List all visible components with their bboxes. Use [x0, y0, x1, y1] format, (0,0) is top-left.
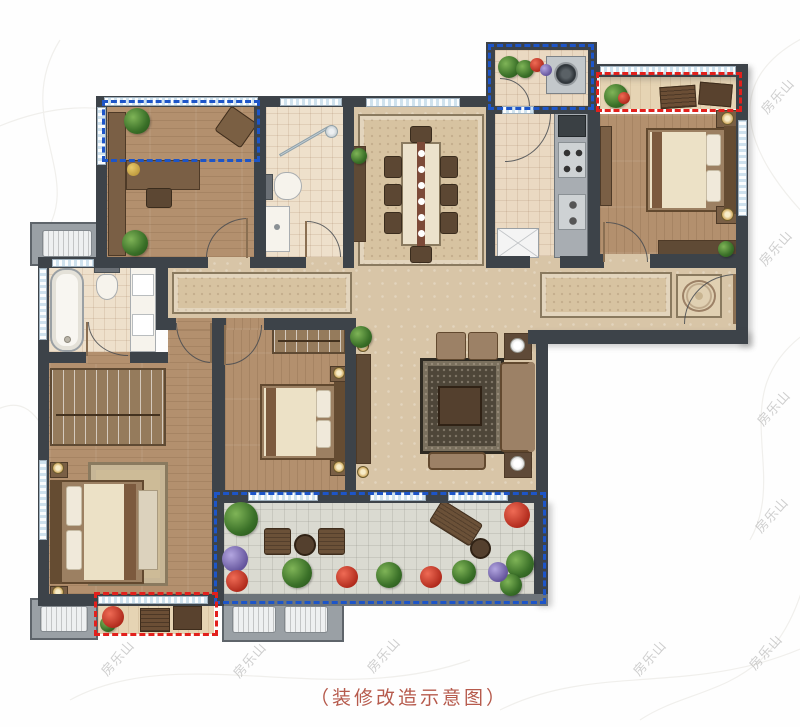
pillow: [316, 420, 331, 448]
dining-chair: [410, 246, 432, 263]
headboard: [50, 480, 62, 584]
table-lamp: [333, 461, 345, 473]
toilet: [96, 274, 118, 300]
window: [39, 460, 47, 540]
place-settings: [418, 150, 425, 157]
armchair: [436, 332, 466, 360]
wall: [588, 106, 600, 268]
renovation-zone-garden-balcony: [214, 492, 546, 604]
bed-runner: [652, 132, 662, 208]
ac-unit: [284, 606, 328, 633]
wall: [38, 352, 86, 363]
wall: [528, 330, 748, 344]
wall: [130, 352, 168, 363]
dining-chair: [384, 184, 402, 206]
dresser: [600, 126, 612, 206]
table-lamp: [721, 208, 734, 221]
dining-chair: [384, 156, 402, 178]
renovation-zone-terrace: [596, 72, 742, 112]
potted-plant: [718, 241, 734, 257]
wall: [486, 106, 495, 268]
bed-runner: [124, 484, 136, 580]
dining-chair: [440, 184, 458, 206]
door-leaf: [305, 221, 307, 257]
entry-runner-rug: [540, 272, 672, 318]
floor-lamp: [357, 466, 369, 478]
door-threshold: [306, 257, 343, 269]
window: [280, 98, 342, 106]
wall: [254, 257, 306, 268]
renovation-zone-utility-balcony: [488, 44, 594, 110]
wall: [560, 256, 600, 268]
window: [738, 120, 747, 216]
renovation-zone-bottom-balcony: [94, 592, 218, 636]
potted-plant: [351, 148, 367, 164]
ac-unit: [232, 606, 276, 633]
coffee-table: [438, 386, 482, 426]
dining-chair: [440, 212, 458, 234]
hallway-runner-rug: [172, 272, 352, 314]
caption: （装修改造示意图）: [310, 683, 508, 710]
refrigerator: [497, 228, 539, 258]
wall: [650, 254, 746, 268]
table-lamp: [510, 338, 525, 353]
bed-runner: [266, 388, 276, 456]
dining-chair: [440, 156, 458, 178]
kitchen-sink: [558, 115, 586, 137]
table-lamp: [510, 456, 525, 471]
wall: [343, 96, 354, 268]
renovation-zone-study: [102, 100, 260, 162]
wall: [536, 330, 548, 502]
wardrobe: [50, 368, 166, 446]
ac-unit: [40, 606, 88, 632]
sofa-back: [527, 362, 535, 452]
wardrobe-rod: [278, 340, 340, 342]
dining-chair: [384, 212, 402, 234]
vanity-sink: [132, 314, 154, 336]
tub-drain: [64, 336, 71, 343]
ac-unit: [42, 230, 92, 257]
table-runner: [417, 142, 425, 246]
table-lamp: [52, 462, 64, 474]
window: [52, 259, 94, 267]
pillow: [66, 486, 82, 526]
shower-head: [325, 125, 338, 138]
wall: [486, 256, 530, 268]
window: [39, 268, 47, 340]
floor-plan-canvas: 房乐山 房乐山 房乐山 房乐山 房乐山 房乐山 房乐山 房乐山 房乐山 （装修改…: [0, 0, 800, 727]
door-leaf: [224, 325, 226, 365]
pillow: [66, 530, 82, 570]
desk-chair: [146, 188, 172, 208]
entry-door-leaf: [733, 274, 736, 324]
dining-chair: [410, 126, 432, 143]
armchair: [468, 332, 498, 360]
door-leaf: [603, 222, 605, 262]
faucet: [274, 224, 280, 230]
bed-bench: [138, 490, 158, 570]
table-lamp: [721, 112, 734, 125]
tv-console: [356, 354, 371, 464]
wardrobe-rod: [56, 414, 160, 416]
headboard: [724, 126, 736, 214]
cooktop: [558, 142, 586, 178]
bench: [428, 452, 486, 470]
vase: [127, 163, 140, 176]
door-leaf: [86, 322, 88, 356]
table-lamp: [333, 367, 345, 379]
door-leaf: [210, 323, 212, 363]
potted-plant: [350, 326, 372, 348]
door-threshold: [208, 257, 250, 269]
wall: [264, 318, 356, 330]
vanity-sink: [132, 274, 154, 296]
potted-plant: [122, 230, 148, 256]
pillow: [706, 134, 721, 166]
door-leaf: [246, 218, 248, 258]
counter-appliance: [558, 194, 586, 230]
pillow: [316, 390, 331, 418]
window: [366, 98, 460, 107]
pillow: [706, 170, 721, 202]
toilet: [274, 172, 302, 200]
